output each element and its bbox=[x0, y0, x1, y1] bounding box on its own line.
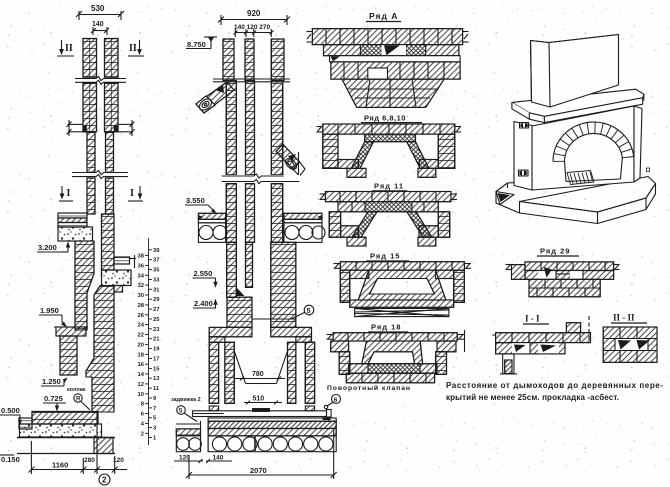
svg-text:Ряд 18: Ряд 18 bbox=[371, 323, 401, 332]
svg-text:колпак: колпак bbox=[67, 387, 86, 393]
svg-text:1.950: 1.950 bbox=[40, 306, 59, 315]
svg-text:15: 15 bbox=[153, 366, 160, 372]
svg-text:140 120 270: 140 120 270 bbox=[234, 24, 271, 31]
svg-text:920: 920 bbox=[247, 9, 261, 18]
svg-text:25: 25 bbox=[153, 317, 160, 323]
svg-text:0.500: 0.500 bbox=[1, 406, 20, 415]
svg-text:2.550: 2.550 bbox=[194, 269, 213, 278]
svg-text:33: 33 bbox=[153, 278, 160, 284]
svg-text:510: 510 bbox=[253, 396, 265, 403]
svg-text:19: 19 bbox=[153, 347, 160, 353]
svg-text:39: 39 bbox=[153, 248, 160, 254]
svg-text:10: 10 bbox=[138, 392, 144, 398]
svg-text:1160: 1160 bbox=[52, 461, 68, 470]
svg-text:Расстояние от дымоходов до дер: Расстояние от дымоходов до деревянных пе… bbox=[446, 381, 664, 390]
svg-text:II: II bbox=[65, 43, 73, 54]
svg-text:12: 12 bbox=[138, 382, 144, 388]
svg-text:II - II: II - II bbox=[613, 313, 635, 323]
svg-text:крытий не менее 25см. прокладк: крытий не менее 25см. прокладка -асбест. bbox=[446, 393, 619, 402]
svg-text:18: 18 bbox=[138, 352, 145, 358]
svg-text:14: 14 bbox=[138, 372, 145, 378]
svg-text:2: 2 bbox=[102, 476, 107, 485]
svg-text:Ряд 6,8,10: Ряд 6,8,10 bbox=[364, 113, 406, 122]
svg-text:21: 21 bbox=[153, 337, 160, 343]
svg-text:20: 20 bbox=[138, 342, 144, 348]
svg-text:II: II bbox=[129, 43, 137, 54]
svg-text:Поворотный клапан: Поворотный клапан bbox=[327, 384, 411, 392]
svg-text:34: 34 bbox=[138, 273, 145, 279]
svg-text:1.250: 1.250 bbox=[42, 377, 61, 386]
svg-text:120: 120 bbox=[113, 457, 124, 464]
svg-text:22: 22 bbox=[138, 333, 144, 339]
svg-text:140: 140 bbox=[92, 21, 104, 28]
svg-text:780: 780 bbox=[252, 371, 264, 378]
svg-text:Ряд 11: Ряд 11 bbox=[374, 182, 404, 191]
svg-text:0.725: 0.725 bbox=[44, 394, 63, 403]
svg-text:7: 7 bbox=[153, 406, 156, 412]
svg-text:29: 29 bbox=[153, 297, 160, 303]
svg-text:6: 6 bbox=[334, 397, 338, 404]
svg-text:32: 32 bbox=[138, 283, 144, 289]
svg-text:38: 38 bbox=[138, 254, 145, 260]
svg-text:36: 36 bbox=[138, 263, 145, 269]
svg-text:11: 11 bbox=[153, 386, 160, 392]
svg-text:17: 17 bbox=[153, 357, 159, 363]
svg-text:I: I bbox=[130, 188, 134, 199]
svg-text:I: I bbox=[67, 188, 71, 199]
svg-text:0.150: 0.150 bbox=[1, 455, 20, 464]
svg-text:3.550: 3.550 bbox=[186, 196, 205, 205]
svg-text:35: 35 bbox=[153, 268, 160, 274]
svg-text:8.750: 8.750 bbox=[187, 40, 206, 49]
svg-text:16: 16 bbox=[138, 362, 145, 368]
svg-text:2.400: 2.400 bbox=[194, 299, 213, 308]
svg-text:13: 13 bbox=[153, 376, 160, 382]
svg-text:280: 280 bbox=[84, 457, 95, 464]
svg-text:3.200: 3.200 bbox=[38, 243, 57, 252]
svg-text:2070: 2070 bbox=[250, 466, 267, 475]
svg-text:26: 26 bbox=[138, 313, 145, 319]
svg-text:2: 2 bbox=[141, 431, 144, 437]
svg-text:Ряд 29: Ряд 29 bbox=[540, 247, 570, 256]
svg-text:28: 28 bbox=[138, 303, 145, 309]
svg-text:Ряд А: Ряд А bbox=[369, 11, 398, 21]
svg-text:5: 5 bbox=[307, 308, 311, 315]
svg-text:530: 530 bbox=[91, 4, 105, 13]
svg-text:Ряд 15: Ряд 15 bbox=[370, 252, 400, 261]
svg-text:23: 23 bbox=[153, 327, 160, 333]
svg-text:37: 37 bbox=[153, 258, 159, 264]
svg-text:31: 31 bbox=[153, 287, 160, 293]
svg-text:Я: Я bbox=[76, 397, 80, 403]
svg-text:I - I: I - I bbox=[525, 314, 540, 324]
svg-text:27: 27 bbox=[153, 307, 159, 313]
svg-text:задвижка 2: задвижка 2 bbox=[171, 397, 201, 403]
svg-text:24: 24 bbox=[138, 323, 145, 329]
svg-text:30: 30 bbox=[138, 293, 144, 299]
